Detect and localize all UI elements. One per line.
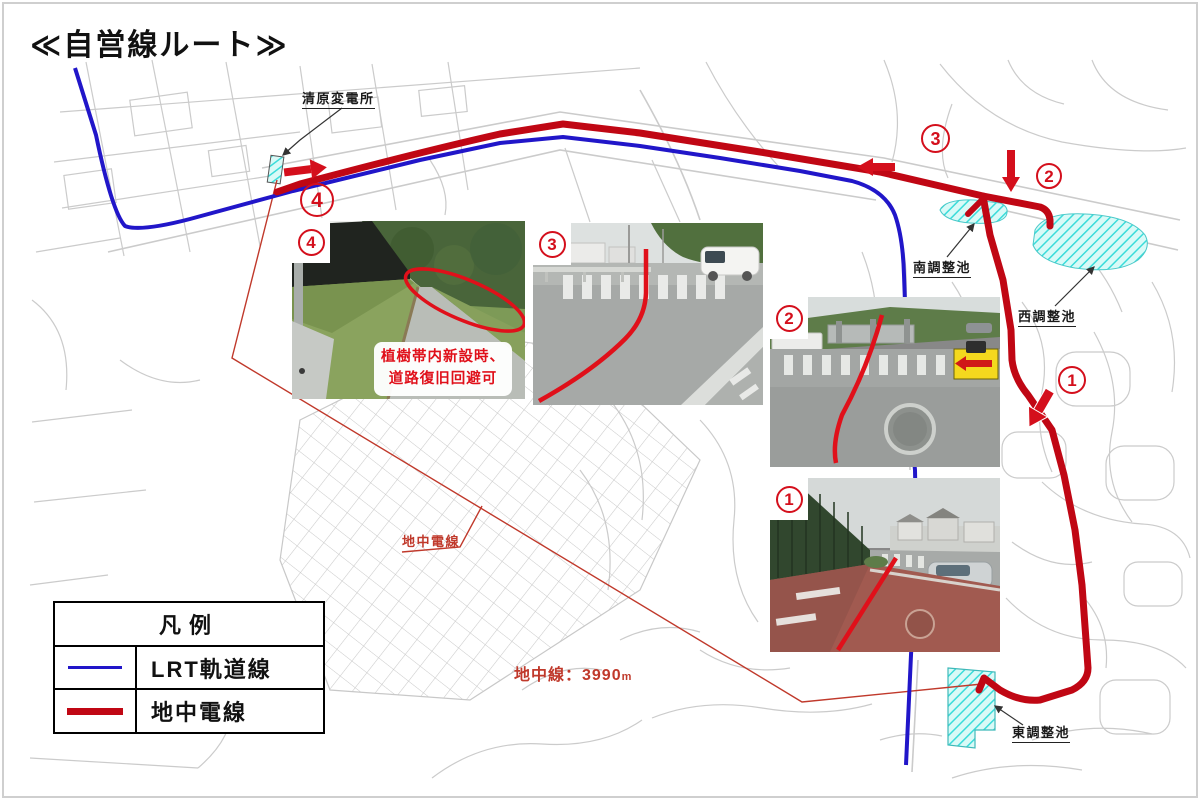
lrt-line-swatch — [68, 666, 122, 669]
route-marker-2-number: 2 — [1044, 168, 1053, 185]
pond-west-label: 西調整池 — [1018, 306, 1076, 327]
substation-label: 清原変電所 — [302, 88, 375, 109]
legend-row-cable: 地中電線 — [55, 690, 323, 732]
route-marker-2: 2 — [1036, 163, 1062, 189]
photo-4-number: 4 — [298, 229, 325, 256]
photo-2-number: 2 — [776, 305, 803, 332]
route-marker-1-number: 1 — [1067, 372, 1076, 389]
legend: 凡例 LRT軌道線 地中電線 — [53, 601, 325, 734]
photo-4-caption: 植樹帯内新設時、 道路復旧回避可 — [374, 342, 512, 396]
page-title: ≪自営線ルート≫ — [30, 20, 289, 64]
photo-1-number: 1 — [776, 486, 803, 513]
route-marker-1: 1 — [1058, 366, 1086, 394]
legend-swatch-col — [55, 647, 137, 688]
photo-2-badge: 2 — [770, 297, 808, 339]
legend-label-lrt: LRT軌道線 — [137, 647, 272, 688]
pond-south-label: 南調整池 — [913, 257, 971, 278]
photo-inset-3: 3 — [533, 223, 763, 405]
pond-east-label: 東調整池 — [1012, 722, 1070, 743]
photo-1-badge: 1 — [770, 478, 808, 520]
cable-length-label: 地中線：3990m — [514, 661, 632, 685]
legend-title: 凡例 — [55, 603, 323, 647]
photo-inset-1: 1 — [770, 478, 1000, 652]
photo-4-caption-line1: 植樹帯内新設時、 — [374, 346, 512, 368]
photo-3-badge: 3 — [533, 223, 571, 265]
route-marker-3-number: 3 — [930, 130, 940, 148]
legend-swatch-col — [55, 690, 137, 732]
legend-label-cable: 地中電線 — [137, 690, 247, 732]
cable-length-unit: m — [622, 671, 633, 683]
legend-row-lrt: LRT軌道線 — [55, 647, 323, 690]
route-marker-3: 3 — [921, 124, 950, 153]
cable-line-swatch — [67, 708, 123, 715]
photo-inset-2: 2 — [770, 297, 1000, 467]
photo-4-badge: 4 — [292, 221, 330, 263]
route-marker-4-number: 4 — [311, 190, 323, 211]
underground-cable-label: 地中電線 — [402, 531, 460, 550]
photo-inset-4: 4 植樹帯内新設時、 道路復旧回避可 — [292, 221, 525, 399]
photo-3-number: 3 — [539, 231, 566, 258]
cable-length-value: 地中線：3990 — [514, 667, 622, 684]
photo-4-caption-line2: 道路復旧回避可 — [374, 368, 512, 390]
route-marker-4: 4 — [300, 183, 334, 217]
substation-box — [267, 155, 284, 184]
